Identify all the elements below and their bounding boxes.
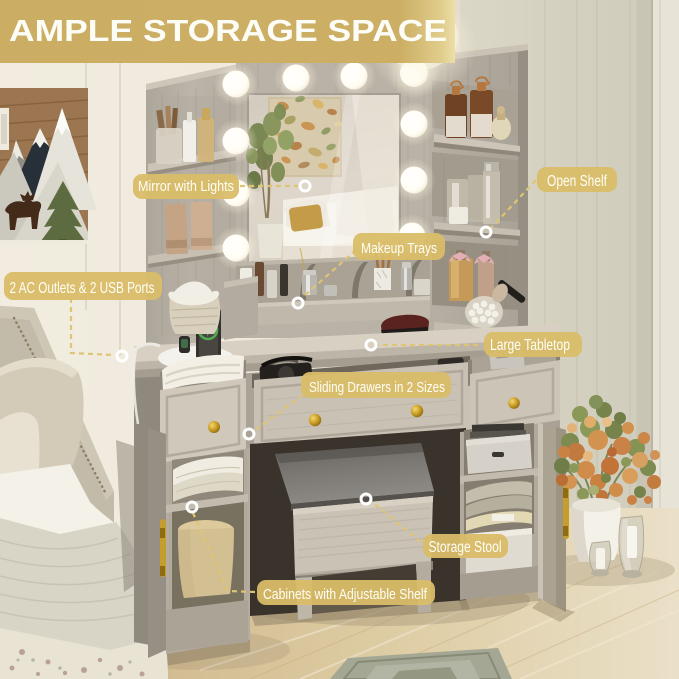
svg-text:Open Shelf: Open Shelf (547, 173, 608, 190)
svg-text:AMPLE STORAGE SPACE: AMPLE STORAGE SPACE (9, 13, 447, 48)
svg-text:Storage Stool: Storage Stool (429, 539, 502, 556)
svg-text:Makeup Trays: Makeup Trays (361, 240, 437, 257)
svg-text:Sliding Drawers in 2 Sizes: Sliding Drawers in 2 Sizes (309, 379, 445, 396)
svg-text:Mirror with Lights: Mirror with Lights (138, 178, 234, 195)
svg-text:Large Tabletop: Large Tabletop (490, 337, 570, 354)
svg-text:2 AC Outlets & 2 USB Ports: 2 AC Outlets & 2 USB Ports (10, 280, 155, 297)
svg-text:Cabinets with Adjustable Shelf: Cabinets with Adjustable Shelf (263, 587, 428, 603)
